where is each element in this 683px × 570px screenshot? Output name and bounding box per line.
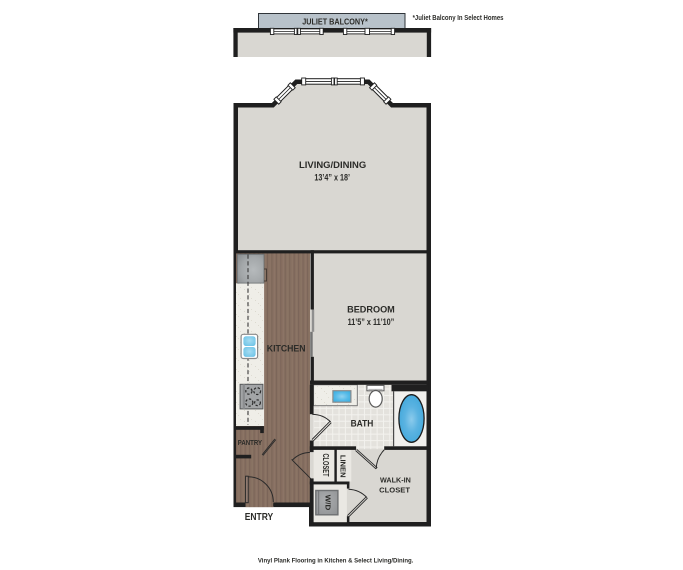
svg-text:CLOSET: CLOSET xyxy=(321,453,330,476)
svg-text:BEDROOM: BEDROOM xyxy=(347,305,395,315)
svg-text:W/D: W/D xyxy=(324,495,333,511)
svg-text:PANTRY: PANTRY xyxy=(238,438,262,447)
svg-text:BATH: BATH xyxy=(351,419,374,430)
svg-text:JULIET BALCONY*: JULIET BALCONY* xyxy=(302,16,368,26)
svg-text:13’4” x 18’: 13’4” x 18’ xyxy=(314,172,350,182)
svg-text:KITCHEN: KITCHEN xyxy=(267,343,306,354)
svg-text:LIVING/DINING: LIVING/DINING xyxy=(299,160,366,170)
svg-text:Vinyl Plank Flooring in Kitche: Vinyl Plank Flooring in Kitchen & Select… xyxy=(258,558,414,565)
svg-text:LINEN: LINEN xyxy=(339,455,346,478)
svg-text:11’5” x 11’10”: 11’5” x 11’10” xyxy=(348,317,395,327)
svg-text:WALK-IN: WALK-IN xyxy=(380,478,411,485)
svg-text:ENTRY: ENTRY xyxy=(245,512,274,523)
svg-text:CLOSET: CLOSET xyxy=(379,488,411,495)
svg-text:*Juliet Balcony In Select Home: *Juliet Balcony In Select Homes xyxy=(413,15,504,22)
